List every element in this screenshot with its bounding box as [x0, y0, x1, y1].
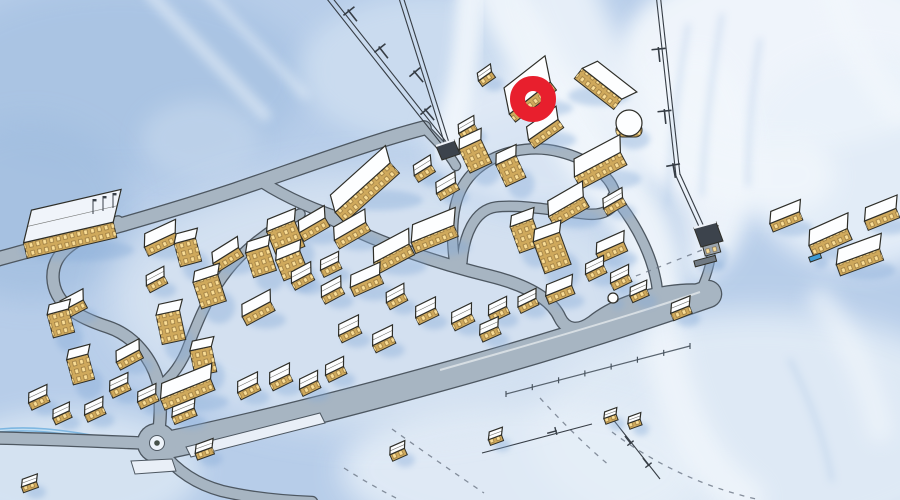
resort-village-map [0, 0, 900, 500]
round-tower-building [616, 110, 642, 137]
resort-map-stage [0, 0, 900, 500]
tree [154, 440, 160, 446]
round-tower-building [608, 293, 618, 303]
road [0, 438, 141, 443]
trees [154, 440, 160, 446]
parking-strip [131, 459, 176, 474]
